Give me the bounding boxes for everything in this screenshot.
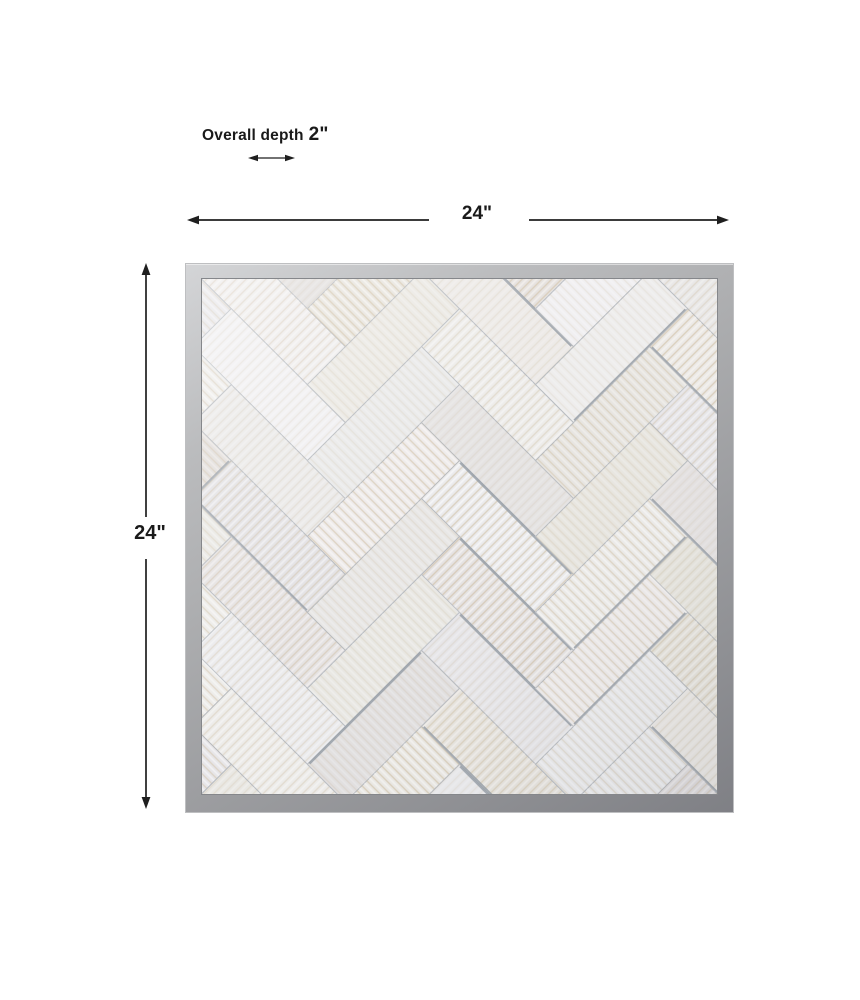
artwork-panel [201, 278, 718, 795]
artwork-frame [186, 264, 733, 812]
depth-value: 2" [309, 124, 329, 145]
herringbone-wood-art [202, 279, 717, 794]
depth-annotation: Overall depth2" [202, 124, 329, 146]
height-dimension-label: 24" [121, 522, 179, 545]
depth-dimension-arrow [248, 155, 295, 161]
width-dimension-label: 24" [440, 203, 514, 225]
depth-label-text: Overall depth [202, 127, 304, 144]
product-dimension-diagram: Overall depth2" 24" 24" [0, 0, 860, 1000]
